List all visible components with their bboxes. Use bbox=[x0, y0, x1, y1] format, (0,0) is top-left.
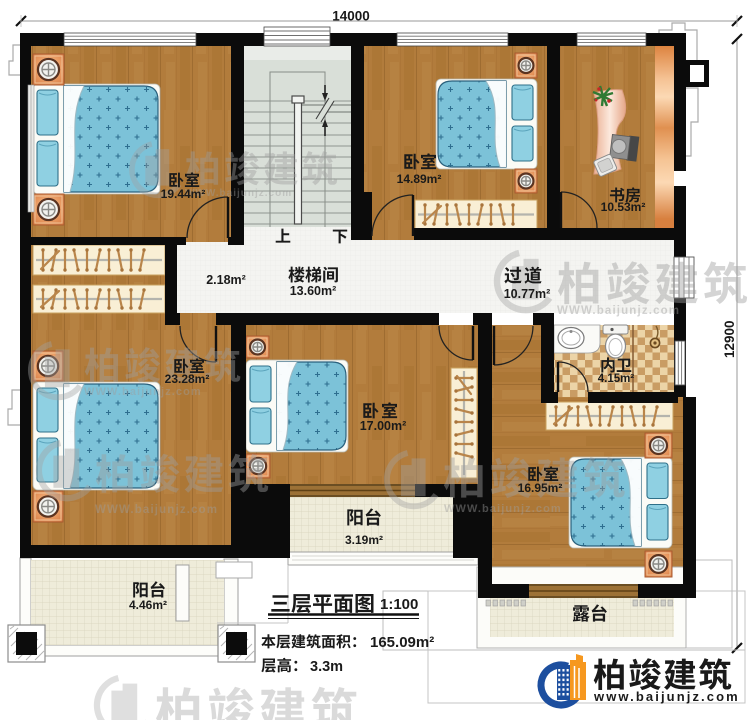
svg-text:4.46m²: 4.46m² bbox=[129, 598, 167, 612]
svg-text:2.18m²: 2.18m² bbox=[206, 273, 246, 287]
svg-text:WWW.baijunjz.com: WWW.baijunjz.com bbox=[95, 504, 218, 516]
svg-text:WWW.baijunjz.com: WWW.baijunjz.com bbox=[444, 503, 562, 515]
svg-text:WWW.baijunjz.com: WWW.baijunjz.com bbox=[84, 386, 202, 398]
svg-text:165.09m²: 165.09m² bbox=[370, 634, 434, 651]
svg-text:10.77m²: 10.77m² bbox=[504, 287, 551, 301]
svg-text:23.28m²: 23.28m² bbox=[165, 372, 210, 386]
svg-text:10.53m²: 10.53m² bbox=[601, 200, 646, 214]
svg-text:14000: 14000 bbox=[332, 9, 370, 24]
svg-text:16.95m²: 16.95m² bbox=[518, 481, 563, 495]
svg-text:12900: 12900 bbox=[722, 320, 737, 358]
svg-text:3.19m²: 3.19m² bbox=[345, 533, 383, 547]
svg-text:www.baijunjz.com: www.baijunjz.com bbox=[593, 689, 740, 704]
svg-text:1:100: 1:100 bbox=[380, 596, 418, 613]
svg-text:4.15m²: 4.15m² bbox=[598, 373, 635, 385]
svg-text:3.3m: 3.3m bbox=[310, 659, 343, 675]
svg-text:19.44m²: 19.44m² bbox=[161, 187, 206, 201]
svg-text:13.60m²: 13.60m² bbox=[290, 284, 337, 298]
svg-text:WWW.baijunjz.com: WWW.baijunjz.com bbox=[557, 305, 680, 317]
svg-text:17.00m²: 17.00m² bbox=[360, 419, 407, 433]
svg-text:14.89m²: 14.89m² bbox=[397, 172, 442, 186]
